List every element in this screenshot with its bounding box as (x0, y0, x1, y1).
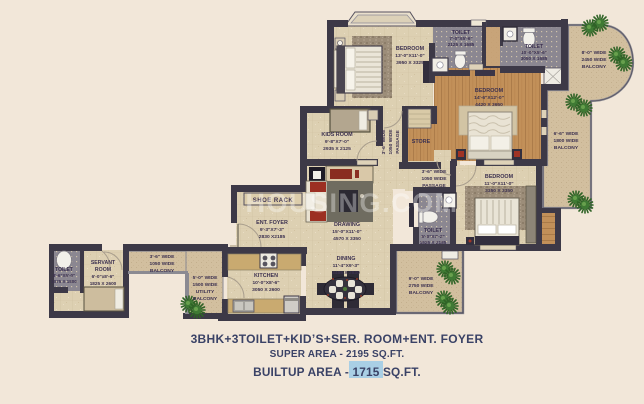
svg-text:3950 X 3325: 3950 X 3325 (396, 60, 424, 66)
svg-text:SUPER AREA - 2195 SQ.FT.: SUPER AREA - 2195 SQ.FT. (270, 349, 405, 360)
svg-text:BEDROOM: BEDROOM (485, 174, 514, 180)
svg-text:PASSAGE: PASSAGE (395, 129, 401, 153)
svg-text:4420 X 3650: 4420 X 3650 (475, 102, 503, 108)
svg-text:1500 WIDE: 1500 WIDE (192, 282, 218, 288)
svg-text:3485 X 2830: 3485 X 2830 (332, 270, 360, 276)
svg-text:3'-6" WIDE: 3'-6" WIDE (150, 254, 175, 260)
svg-text:BEDROOM: BEDROOM (396, 46, 425, 52)
svg-text:2125 X 1685: 2125 X 1685 (448, 42, 475, 47)
svg-text:6'-6" WIDE: 6'-6" WIDE (554, 131, 579, 137)
svg-text:3'-6" WIDE: 3'-6" WIDE (381, 129, 387, 154)
svg-text:BALCONY: BALCONY (554, 145, 579, 151)
svg-text:2935 X 2125: 2935 X 2125 (323, 146, 351, 152)
svg-text:9'-3"X7'-3": 9'-3"X7'-3" (260, 227, 284, 233)
svg-text:2450 WIDE: 2450 WIDE (581, 57, 607, 63)
svg-text:3050 X 1685: 3050 X 1685 (521, 56, 548, 61)
svg-text:10'-0"X5'-6": 10'-0"X5'-6" (521, 50, 547, 55)
svg-text:5'-0" WIDE: 5'-0" WIDE (193, 275, 218, 281)
svg-text:1050 WIDE: 1050 WIDE (421, 176, 447, 182)
svg-text:3'-6"X5'-0": 3'-6"X5'-0" (53, 273, 75, 278)
svg-text:1525 X 2185: 1525 X 2185 (420, 240, 447, 245)
svg-text:9'-8"X7'-0": 9'-8"X7'-0" (325, 139, 349, 145)
svg-text:8'-0" WIDE: 8'-0" WIDE (582, 50, 607, 56)
svg-text:11'-4"X9'-3": 11'-4"X9'-3" (333, 263, 360, 269)
svg-text:ENT. FOYER: ENT. FOYER (256, 220, 288, 226)
svg-text:14'-6"X12'-0": 14'-6"X12'-0" (474, 95, 504, 101)
svg-text:SERVANT: SERVANT (91, 260, 116, 266)
svg-text:4570 X 3350: 4570 X 3350 (333, 236, 361, 242)
svg-text:2750 WIDE: 2750 WIDE (408, 283, 434, 289)
svg-text:6'-0"x8'-6": 6'-0"x8'-6" (92, 274, 115, 279)
svg-text:ROOM: ROOM (95, 267, 111, 273)
svg-text:5'-0"X7'-2": 5'-0"X7'-2" (421, 234, 444, 239)
svg-text:BALCONY: BALCONY (150, 268, 175, 274)
svg-text:13'-0"X11'-0": 13'-0"X11'-0" (395, 53, 425, 59)
svg-text:HOUSING.COM: HOUSING.COM (245, 188, 458, 218)
svg-text:9'-0" WIDE: 9'-0" WIDE (409, 276, 434, 282)
svg-text:STORE: STORE (412, 139, 431, 145)
svg-text:UTILITY: UTILITY (196, 289, 215, 295)
svg-text:11'-0"X11'-0": 11'-0"X11'-0" (484, 181, 513, 187)
svg-text:2830 X2185: 2830 X2185 (259, 234, 286, 240)
svg-text:1825 X 2600: 1825 X 2600 (90, 281, 117, 286)
svg-text:10'-0"X8'-6": 10'-0"X8'-6" (252, 280, 279, 286)
svg-text:BUILTUP AREA - 1715 SQ.FT.: BUILTUP AREA - 1715 SQ.FT. (253, 365, 421, 379)
svg-text:BALCONY: BALCONY (582, 64, 607, 70)
svg-text:3050 X 2600: 3050 X 2600 (252, 287, 280, 293)
svg-text:7'-0"X5'-6": 7'-0"X5'-6" (449, 36, 472, 41)
svg-text:1050 WIDE: 1050 WIDE (388, 129, 394, 155)
svg-text:1050 WIDE: 1050 WIDE (149, 261, 175, 267)
svg-text:DINING: DINING (337, 256, 356, 262)
svg-text:BALCONY: BALCONY (193, 296, 218, 302)
svg-text:15'-0"X11'-0": 15'-0"X11'-0" (332, 229, 362, 235)
svg-text:KITCHEN: KITCHEN (254, 273, 278, 279)
svg-text:DRAWING: DRAWING (334, 222, 360, 228)
svg-text:3BHK+3TOILET+KID’S+SER. ROOM+E: 3BHK+3TOILET+KID’S+SER. ROOM+ENT. FOYER (191, 332, 484, 346)
svg-text:1800 WIDE: 1800 WIDE (553, 138, 579, 144)
svg-text:KIDS ROOM: KIDS ROOM (321, 132, 353, 138)
svg-text:BEDROOM: BEDROOM (475, 88, 504, 94)
svg-text:3'-6" WIDE: 3'-6" WIDE (422, 169, 447, 175)
svg-text:BALCONY: BALCONY (409, 290, 434, 296)
svg-text:3350 X 3350: 3350 X 3350 (485, 188, 513, 194)
svg-text:1075 X 1500: 1075 X 1500 (51, 279, 77, 284)
